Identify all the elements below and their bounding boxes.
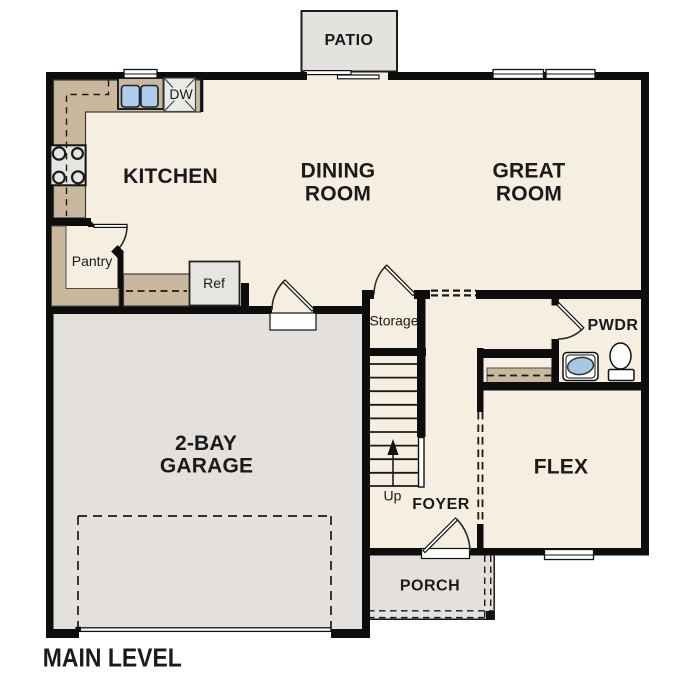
svg-text:ROOM: ROOM	[496, 183, 562, 206]
svg-text:PORCH: PORCH	[400, 578, 460, 595]
svg-text:GREAT: GREAT	[493, 160, 566, 183]
svg-text:2-BAY: 2-BAY	[175, 432, 237, 455]
svg-text:PWDR: PWDR	[588, 317, 639, 334]
svg-text:KITCHEN: KITCHEN	[123, 165, 218, 188]
svg-text:Ref: Ref	[203, 275, 225, 291]
svg-text:PATIO: PATIO	[324, 32, 373, 49]
svg-text:Storage: Storage	[369, 313, 418, 329]
svg-text:DW: DW	[169, 86, 193, 102]
svg-text:FOYER: FOYER	[412, 496, 470, 513]
svg-text:GARAGE: GARAGE	[160, 455, 253, 478]
svg-text:DINING: DINING	[301, 160, 376, 183]
svg-text:MAIN LEVEL: MAIN LEVEL	[43, 643, 182, 673]
svg-text:Up: Up	[384, 488, 402, 504]
svg-text:ROOM: ROOM	[305, 183, 371, 206]
svg-text:Pantry: Pantry	[72, 253, 112, 269]
svg-text:FLEX: FLEX	[534, 456, 588, 479]
